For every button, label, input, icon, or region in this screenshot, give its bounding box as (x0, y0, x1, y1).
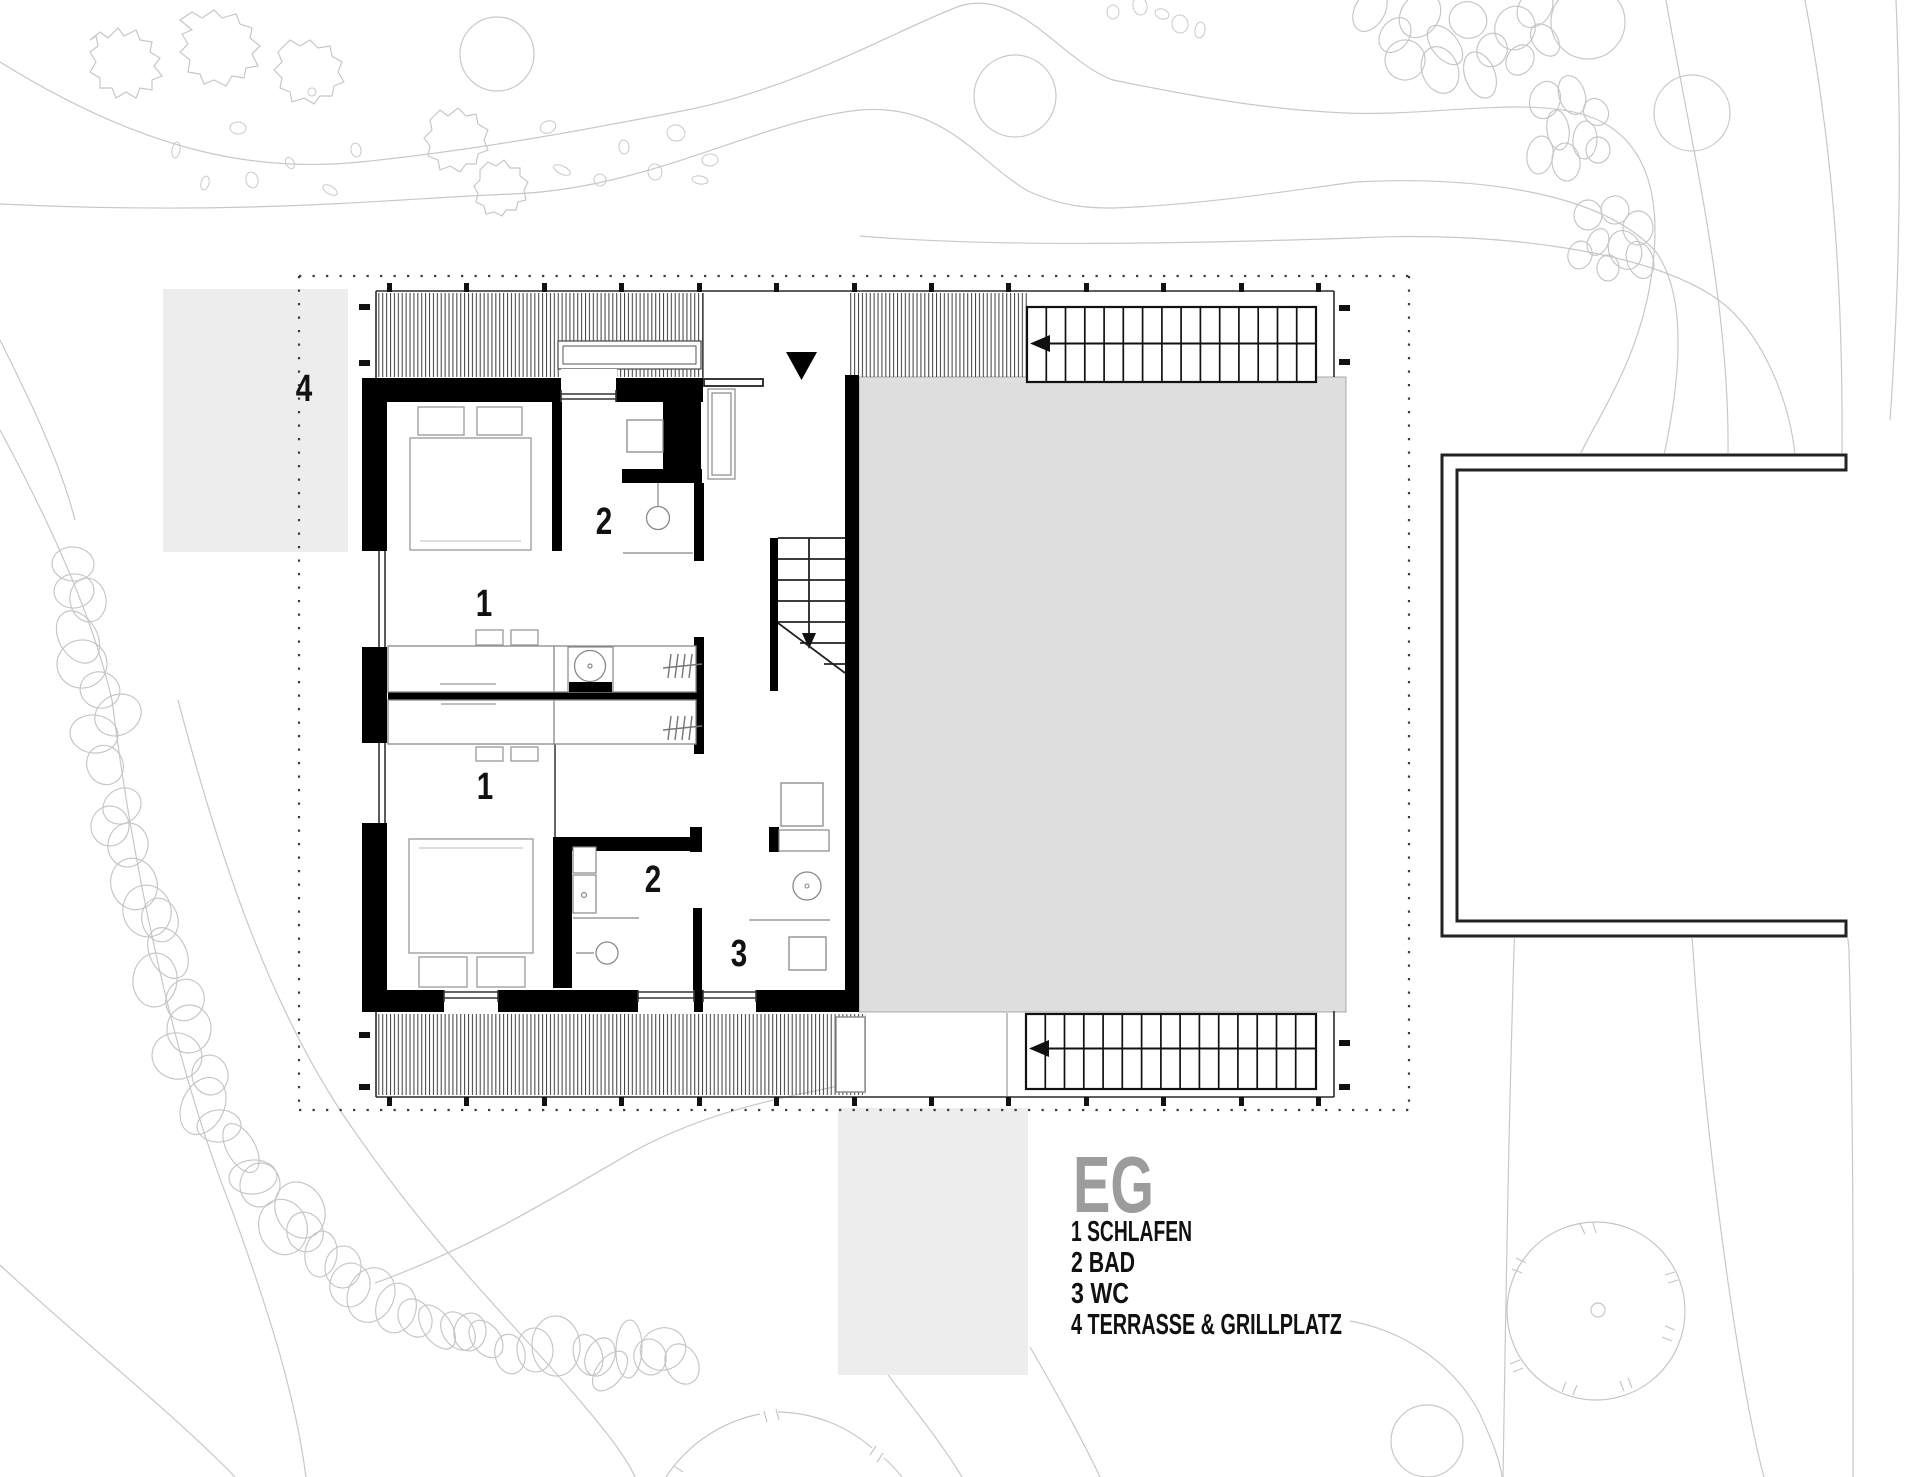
svg-text:3 WC: 3 WC (1071, 1278, 1129, 1310)
svg-text:3: 3 (731, 933, 747, 975)
svg-text:1 SCHLAFEN: 1 SCHLAFEN (1071, 1216, 1192, 1248)
svg-text:2: 2 (645, 859, 661, 901)
svg-text:1: 1 (477, 766, 493, 808)
svg-text:4 TERRASSE & GRILLPLATZ: 4 TERRASSE & GRILLPLATZ (1071, 1309, 1342, 1341)
svg-text:2: 2 (596, 501, 612, 543)
svg-text:4: 4 (296, 368, 313, 410)
svg-text:2 BAD: 2 BAD (1071, 1247, 1135, 1279)
svg-text:1: 1 (476, 583, 492, 625)
